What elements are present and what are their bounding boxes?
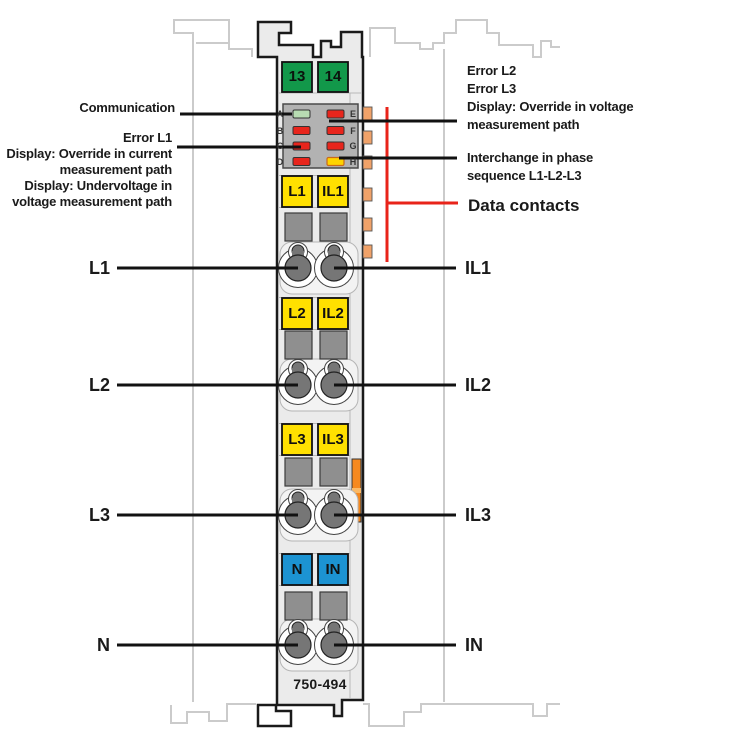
label-right-group-mid: Interchange in phase sequence L1-L2-L3	[467, 149, 593, 185]
label-undervoltage-2: voltage measurement path	[6, 194, 172, 210]
led-g	[327, 142, 344, 150]
label-undervoltage-1: Display: Undervoltage in	[6, 178, 172, 194]
led-b	[293, 127, 310, 135]
label-il3: IL3	[465, 504, 491, 526]
diagram-canvas: 13 14 A B C D E F G H L1 IL1 L2 IL2 L3 I…	[0, 0, 750, 750]
tag-l3-label: L3	[282, 424, 312, 455]
label-override-voltage-1: Display: Override in voltage	[467, 98, 633, 116]
led-letter-g: G	[348, 140, 358, 152]
tag-l2-label: L2	[282, 298, 312, 329]
led-d	[293, 158, 310, 166]
led-letter-c: C	[275, 140, 285, 152]
adjacent-module-left-outline	[171, 20, 256, 723]
tag-l1-label: L1	[282, 176, 312, 207]
led-f	[327, 127, 344, 135]
label-in: IN	[465, 634, 483, 656]
led-letter-e: E	[348, 108, 358, 120]
label-override-current-2: measurement path	[6, 162, 172, 178]
terminal-13-label: 13	[282, 62, 312, 92]
label-communication: Communication	[79, 100, 175, 116]
label-l2: L2	[89, 374, 110, 396]
tag-in-label: IN	[318, 554, 348, 585]
label-override-current-1: Display: Override in current	[6, 146, 172, 162]
label-interchange-1: Interchange in phase	[467, 149, 593, 167]
tag-il1-label: IL1	[318, 176, 348, 207]
led-letter-f: F	[348, 125, 358, 137]
module-rail-foot	[258, 705, 291, 726]
label-interchange-2: sequence L1-L2-L3	[467, 167, 593, 185]
label-l1: L1	[89, 257, 110, 279]
model-number: 750-494	[282, 676, 358, 692]
label-error-l3: Error L3	[467, 80, 633, 98]
led-letter-b: B	[275, 125, 285, 137]
label-override-voltage-2: measurement path	[467, 116, 633, 134]
label-left-group: Error L1 Display: Override in current me…	[6, 130, 172, 210]
label-right-group-top: Error L2 Error L3 Display: Override in v…	[467, 62, 633, 134]
label-il1: IL1	[465, 257, 491, 279]
tag-il3-label: IL3	[318, 424, 348, 455]
label-error-l1: Error L1	[6, 130, 172, 146]
tag-il2-label: IL2	[318, 298, 348, 329]
led-letter-a: A	[275, 108, 285, 120]
led-e	[327, 110, 344, 118]
data-contacts-bracket	[387, 107, 458, 262]
label-data-contacts: Data contacts	[468, 196, 579, 216]
data-contact-tabs	[363, 107, 372, 258]
terminal-14-label: 14	[318, 62, 348, 92]
tag-n-label: N	[282, 554, 312, 585]
label-error-l2: Error L2	[467, 62, 633, 80]
led-letter-h: H	[348, 156, 358, 168]
led-a	[293, 110, 310, 118]
label-il2: IL2	[465, 374, 491, 396]
led-letter-d: D	[275, 156, 285, 168]
label-n: N	[97, 634, 110, 656]
label-l3: L3	[89, 504, 110, 526]
